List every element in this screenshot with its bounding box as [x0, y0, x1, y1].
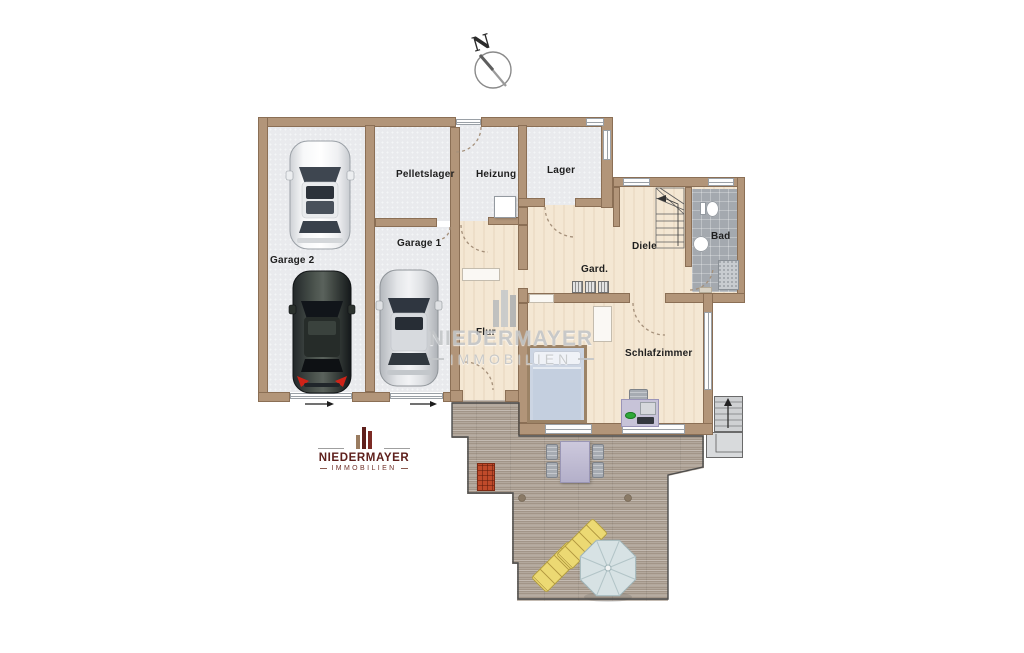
wall-flur-right-a [518, 225, 528, 270]
compass-dial [475, 52, 511, 88]
radiator-segment [585, 281, 596, 293]
room-label-bad: Bad [711, 231, 731, 242]
bed-pillow [533, 351, 581, 365]
wall-garage-divider [365, 125, 375, 392]
window-diele-top [623, 178, 650, 186]
doormat [477, 463, 495, 491]
wall-top-left [258, 117, 456, 127]
logo-subtitle-row: IMMOBILIEN [312, 465, 416, 472]
wall-heizung-lager-divider [518, 125, 527, 208]
compass-n-label: N [469, 29, 493, 57]
wall-lager-bottom-a [518, 198, 545, 207]
flur-closet [462, 268, 500, 281]
wall-diele-bad-divider [685, 187, 692, 267]
wall-outer-left [258, 117, 268, 402]
wall-pellets-bottom [375, 218, 437, 227]
patio-chair [546, 462, 558, 478]
compass-needle [480, 55, 506, 86]
wall-heizung-bottom [488, 217, 520, 225]
wall-diele-left-stub [613, 187, 620, 227]
bath-mat [699, 287, 712, 293]
logo-rule-left [318, 448, 344, 449]
bed-blanket [533, 367, 581, 420]
patio-table [560, 441, 590, 483]
patio-chair [592, 444, 604, 460]
desk-plant [625, 412, 636, 419]
room-label-schlafzimmer: Schlafzimmer [625, 348, 692, 359]
toilet-bowl [706, 201, 719, 217]
desk-laptop [637, 417, 654, 424]
wall-garage-bottom-b [352, 392, 390, 402]
compass: N [469, 29, 511, 88]
wardrobe [593, 306, 612, 342]
wall-gard-corner [518, 207, 528, 225]
radiator-segment [572, 281, 583, 293]
logo-subtitle: IMMOBILIEN [331, 465, 396, 472]
window-lager-top [586, 118, 604, 126]
logo-building-icon [312, 426, 416, 449]
logo-dash [401, 468, 408, 469]
logo-rule-right [384, 448, 410, 449]
bed [527, 345, 587, 423]
window-bad-top [708, 178, 734, 186]
wall-flur-bottom-a [450, 390, 463, 402]
wall-garage-bottom-a [258, 392, 290, 402]
exterior-stair-landing [706, 432, 743, 458]
door-sill-heizung-top [456, 119, 481, 125]
window-bedroom-right [704, 312, 712, 390]
garage2-door-sill [290, 393, 352, 399]
room-label-garage2: Garage 2 [270, 255, 314, 266]
wall-flur-right-b [518, 288, 528, 303]
room-label-lager: Lager [547, 165, 575, 176]
floor-garage1 [375, 227, 450, 392]
room-label-garage1: Garage 1 [397, 238, 441, 249]
window-lager-right [603, 130, 611, 160]
radiator-segment [598, 281, 609, 293]
floor-plan: N [0, 0, 1024, 653]
room-label-gard: Gard. [581, 264, 608, 275]
logo-dash [320, 468, 327, 469]
room-label-pelletslager: Pelletslager [396, 169, 455, 180]
desk-monitor [640, 402, 656, 415]
patio-chair [546, 444, 558, 460]
room-label-diele: Diele [632, 241, 657, 252]
agency-logo: NIEDERMAYER IMMOBILIEN [312, 426, 416, 472]
room-label-heizung: Heizung [476, 169, 516, 180]
desk [621, 399, 659, 427]
shower [718, 260, 739, 290]
exterior-stairs [714, 396, 743, 432]
garage1-door-sill [390, 393, 443, 399]
heater-unit [494, 196, 516, 218]
patio-chair [592, 462, 604, 478]
logo-name: NIEDERMAYER [312, 452, 416, 464]
sink [693, 236, 709, 252]
room-label-flur: Flur [476, 327, 496, 338]
sideboard [529, 294, 554, 303]
window-bedroom-bottom-a [545, 424, 592, 434]
